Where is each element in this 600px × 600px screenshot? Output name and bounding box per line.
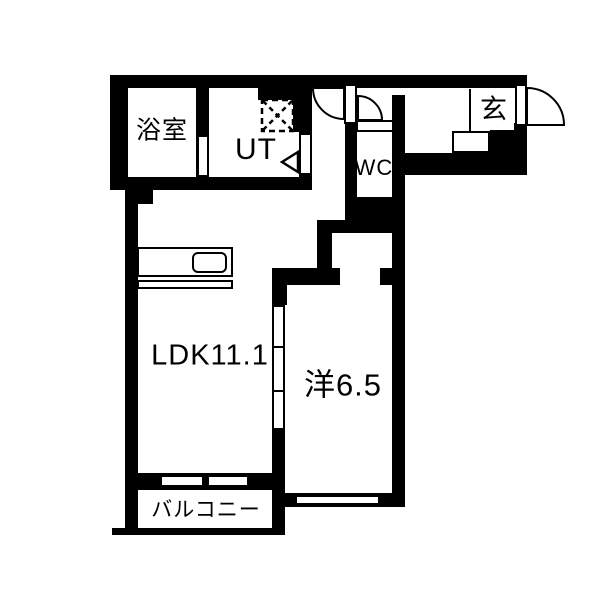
- ut-nook-right-wall: [293, 88, 312, 132]
- balcony-bottom-wall: [112, 528, 285, 535]
- bathroom-door: [197, 135, 209, 177]
- east-wall: [392, 197, 405, 507]
- partition-wall-upper: [272, 285, 287, 305]
- wc-right-wall: [392, 95, 405, 197]
- ut-door-triangle-icon: [282, 152, 298, 172]
- genkan-step: [452, 131, 490, 153]
- western-room-top-wall-left: [272, 268, 340, 285]
- room-label-balcony: バルコニー: [151, 500, 261, 521]
- room-label-bathroom: 浴室: [136, 119, 188, 144]
- room-label-utility: UT: [235, 135, 277, 165]
- ut-door: [299, 133, 312, 175]
- hall-door-leaf: [344, 84, 357, 124]
- western-room-window: [295, 495, 380, 505]
- wc-door-swing-icon: [358, 96, 382, 120]
- ldk-bottom-wall: [125, 473, 285, 490]
- washing-machine-icon: [262, 100, 293, 131]
- bath-ut-bottom-wall: [110, 177, 312, 190]
- entrance-door-leaf: [515, 84, 527, 126]
- right-wall-below-entrance-door: [514, 123, 527, 155]
- top-wall: [110, 75, 527, 88]
- western-room-top-wall-right: [380, 268, 405, 285]
- sliding-door: [272, 305, 285, 430]
- entrance-bottom-wall: [403, 153, 527, 175]
- left-wall-upper: [110, 75, 128, 190]
- room-label-ldk: LDK11.1: [151, 342, 269, 371]
- balcony-window-pane-left: [160, 475, 204, 487]
- wc-door-leaf: [356, 120, 394, 132]
- ut-nook-ceiling-wall: [258, 88, 293, 100]
- floorplan-canvas: 浴室 UT WC 玄 LDK11.1 洋6.5 バルコニー: [0, 0, 600, 600]
- hall-door-swing-icon: [313, 88, 344, 119]
- kitchen-sink: [192, 252, 227, 273]
- balcony-window-pane-right: [207, 475, 249, 487]
- room-label-western-room: 洋6.5: [304, 370, 382, 401]
- room-label-toilet: WC: [355, 157, 394, 179]
- kitchen-counter-front: [137, 280, 233, 289]
- entrance-door-swing-icon: [527, 88, 564, 125]
- room-label-entrance: 玄: [480, 97, 508, 124]
